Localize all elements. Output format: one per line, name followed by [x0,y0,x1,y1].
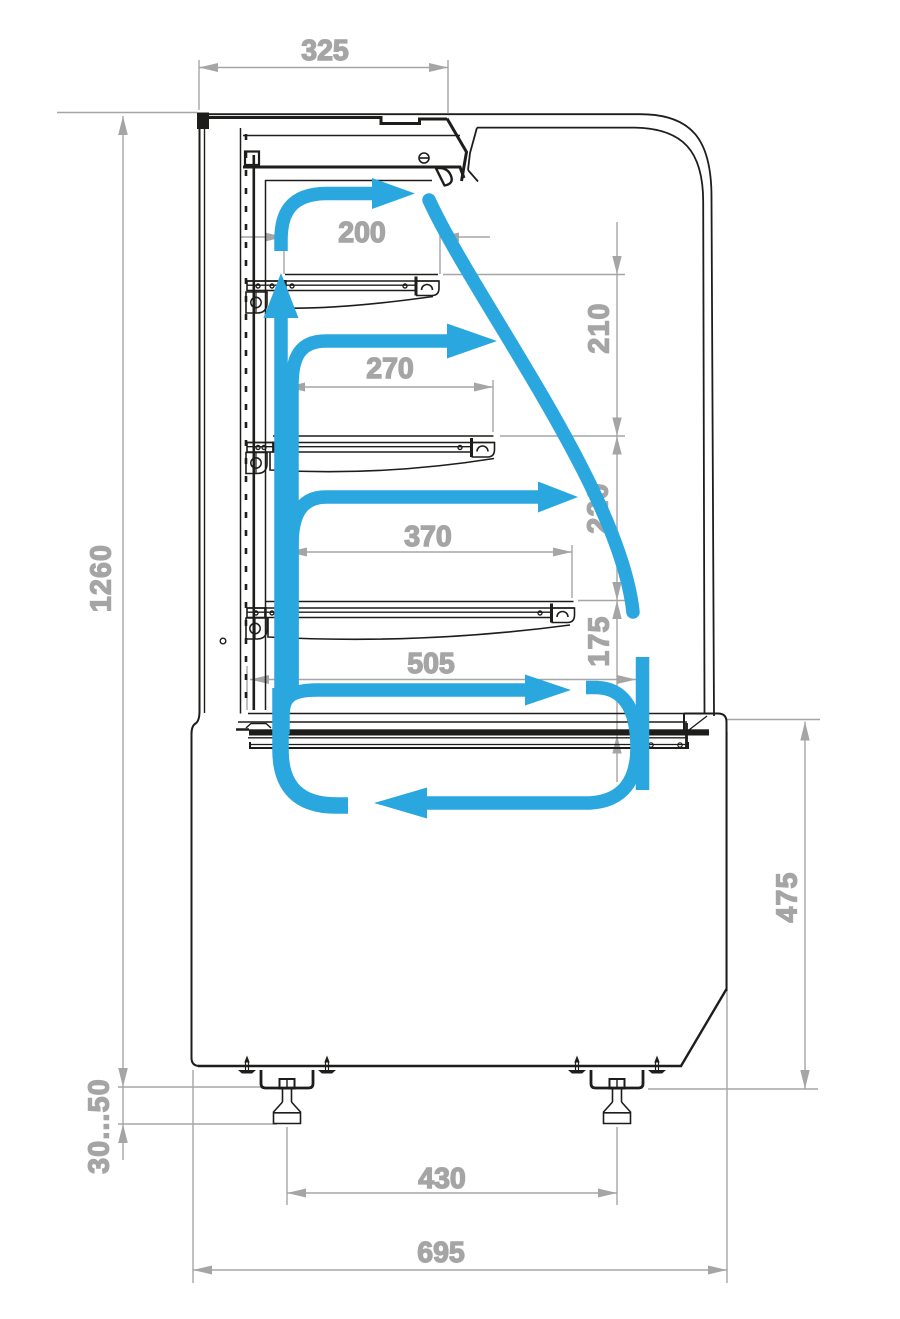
svg-text:1260: 1260 [86,544,118,612]
svg-text:30...50: 30...50 [84,1078,116,1174]
svg-text:210: 210 [584,302,616,353]
svg-text:200: 200 [338,217,386,249]
svg-text:175: 175 [584,615,616,666]
svg-text:430: 430 [418,1163,466,1195]
svg-text:325: 325 [301,35,349,67]
svg-text:370: 370 [404,521,452,553]
svg-text:475: 475 [772,871,804,922]
svg-text:270: 270 [366,353,414,385]
svg-text:695: 695 [417,1237,465,1269]
svg-text:505: 505 [407,648,455,680]
